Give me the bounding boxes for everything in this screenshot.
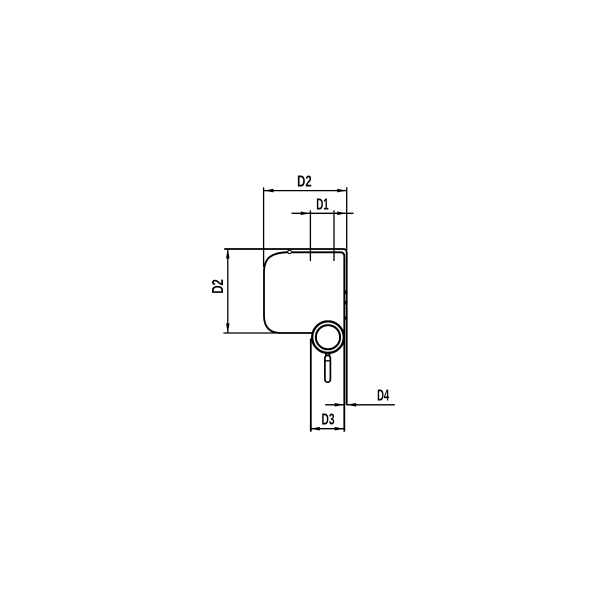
svg-text:D1: D1 <box>316 197 329 214</box>
svg-text:D2: D2 <box>210 279 227 294</box>
svg-text:D3: D3 <box>322 411 335 428</box>
svg-text:D2: D2 <box>297 173 312 190</box>
svg-text:D4: D4 <box>377 387 389 404</box>
